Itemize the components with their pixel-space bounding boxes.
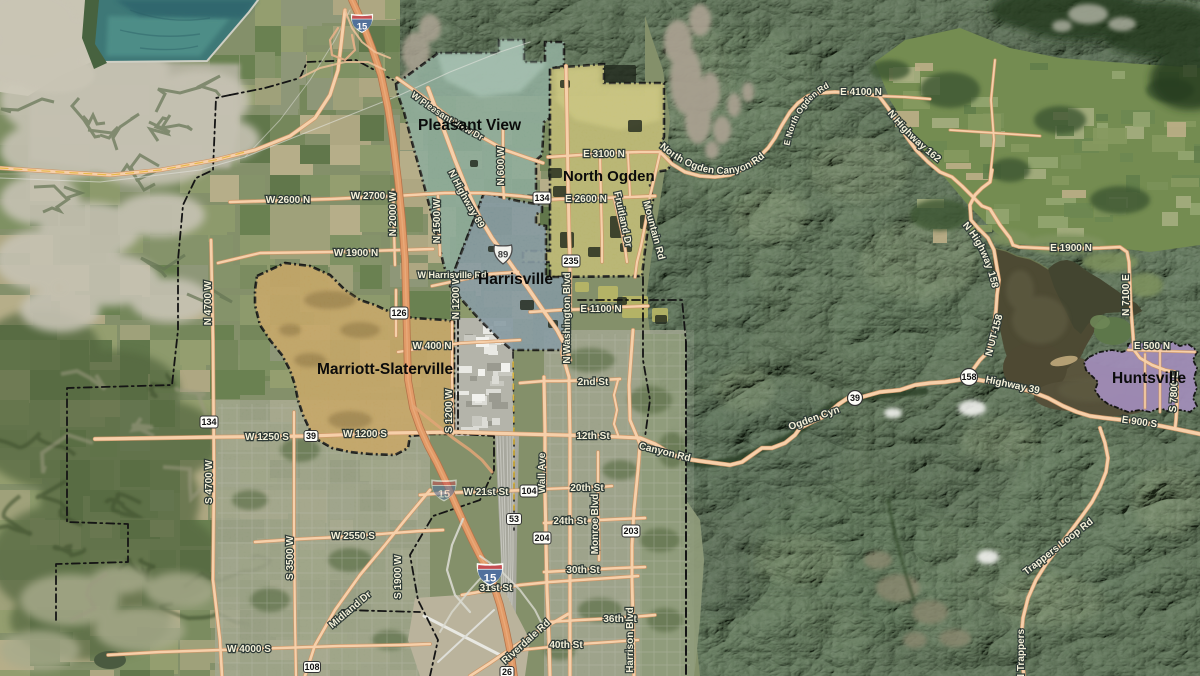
svg-text:W Harrisville Rd: W Harrisville Rd: [417, 270, 486, 280]
svg-text:53: 53: [509, 514, 519, 524]
svg-text:N 4700 W: N 4700 W: [203, 280, 214, 325]
svg-text:W 1200 S: W 1200 S: [343, 429, 387, 440]
svg-text:W 2550 S: W 2550 S: [331, 531, 375, 542]
svg-text:W 21st St: W 21st St: [463, 487, 509, 498]
svg-text:N Trappers: N Trappers: [1016, 628, 1027, 676]
svg-text:Harrison Blvd: Harrison Blvd: [625, 607, 636, 673]
svg-text:158: 158: [961, 372, 976, 382]
svg-text:Harrisville: Harrisville: [478, 271, 553, 288]
svg-text:W 1900 N: W 1900 N: [334, 248, 378, 259]
svg-text:N 7100 E: N 7100 E: [1121, 274, 1132, 316]
svg-text:E 4100 N: E 4100 N: [840, 87, 882, 98]
svg-text:235: 235: [563, 256, 578, 266]
svg-text:E 1100 N: E 1100 N: [580, 304, 621, 315]
svg-text:15: 15: [357, 21, 368, 32]
svg-text:108: 108: [304, 662, 319, 672]
svg-text:39: 39: [306, 431, 316, 441]
svg-text:104: 104: [521, 486, 536, 496]
svg-text:W 4000 S: W 4000 S: [227, 644, 271, 655]
svg-text:134: 134: [201, 417, 216, 427]
svg-text:15: 15: [438, 488, 450, 500]
svg-text:W 2600 N: W 2600 N: [266, 195, 310, 206]
svg-text:30th St: 30th St: [566, 565, 600, 576]
svg-text:20th St: 20th St: [570, 483, 604, 494]
svg-text:Monroe Blvd: Monroe Blvd: [590, 494, 601, 555]
svg-text:126: 126: [391, 308, 406, 318]
svg-text:89: 89: [498, 250, 509, 261]
svg-text:N 1500 W: N 1500 W: [432, 198, 443, 243]
svg-text:S 1200 W: S 1200 W: [444, 388, 455, 432]
svg-text:204: 204: [534, 533, 549, 543]
svg-text:203: 203: [623, 526, 638, 536]
svg-text:15: 15: [484, 573, 497, 585]
svg-text:12th St: 12th St: [576, 431, 610, 442]
svg-text:N Washington Blvd: N Washington Blvd: [562, 272, 573, 363]
svg-text:Wall Ave: Wall Ave: [537, 452, 548, 493]
svg-text:E 500 N: E 500 N: [1134, 341, 1170, 352]
svg-text:S 3500 W: S 3500 W: [285, 535, 296, 579]
svg-text:Huntsville: Huntsville: [1112, 370, 1186, 387]
svg-text:N 600 W: N 600 W: [496, 146, 507, 185]
svg-text:S 1900 W: S 1900 W: [393, 554, 404, 598]
svg-text:31st St: 31st St: [480, 583, 513, 594]
svg-text:S 4700 W: S 4700 W: [204, 459, 215, 503]
svg-text:E 1900 N: E 1900 N: [1050, 243, 1092, 254]
svg-text:39: 39: [850, 393, 860, 403]
svg-text:W 400 N: W 400 N: [413, 341, 452, 352]
svg-text:North Ogden: North Ogden: [563, 168, 655, 185]
svg-text:N 1200 W: N 1200 W: [451, 274, 462, 319]
svg-text:Pleasant View: Pleasant View: [418, 117, 522, 134]
svg-text:24th St: 24th St: [553, 516, 587, 527]
svg-text:E 3100 N: E 3100 N: [583, 149, 625, 160]
svg-text:134: 134: [534, 193, 549, 203]
svg-text:E 2600 N: E 2600 N: [565, 194, 607, 205]
svg-text:W 1250 S: W 1250 S: [245, 432, 289, 443]
svg-text:26: 26: [502, 667, 512, 676]
svg-text:N 2000 W: N 2000 W: [388, 191, 399, 236]
svg-text:Marriott-Slaterville: Marriott-Slaterville: [317, 361, 453, 378]
svg-text:40th St: 40th St: [549, 640, 583, 651]
svg-text:2nd St: 2nd St: [578, 377, 609, 388]
